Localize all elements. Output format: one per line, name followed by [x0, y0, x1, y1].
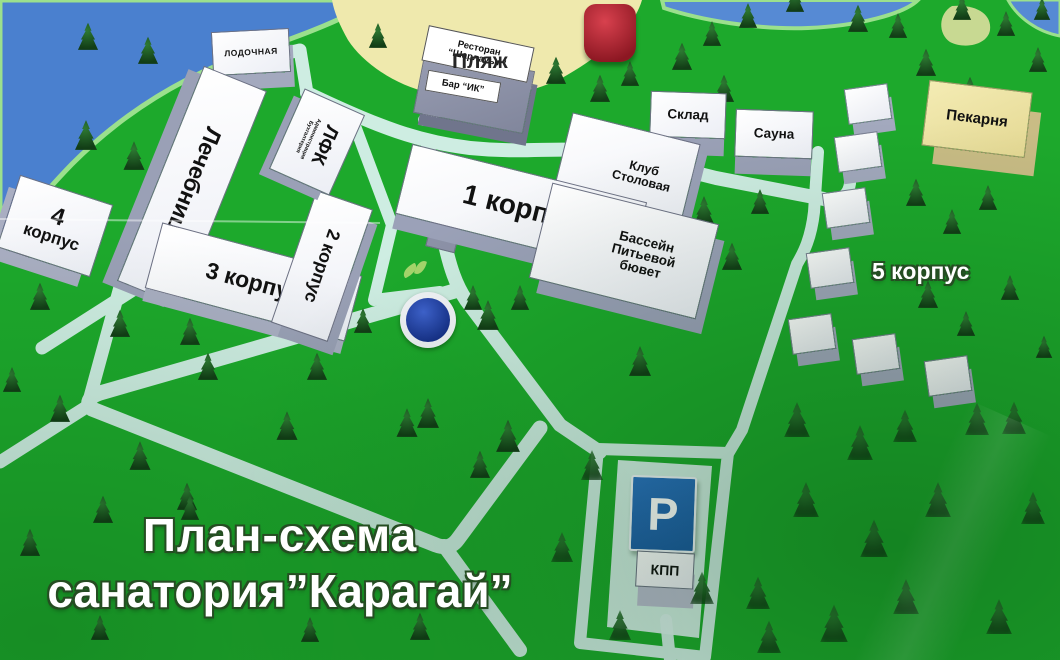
site-plan-map: ЛОДОЧНАЯ Ресторан “Шарлауык” Бар “ИК” 1 … [0, 0, 1060, 660]
map-title: План-схема санатория”Карагай” [30, 508, 530, 618]
map-text-layer: Пляж 5 корпус План-схема санатория”Караг… [0, 0, 1060, 660]
map-title-line2: санатория”Карагай” [30, 564, 530, 618]
building-5-label: 5 корпус [872, 258, 969, 285]
map-title-line1: План-схема [30, 508, 530, 562]
beach-label: Пляж [452, 50, 508, 74]
